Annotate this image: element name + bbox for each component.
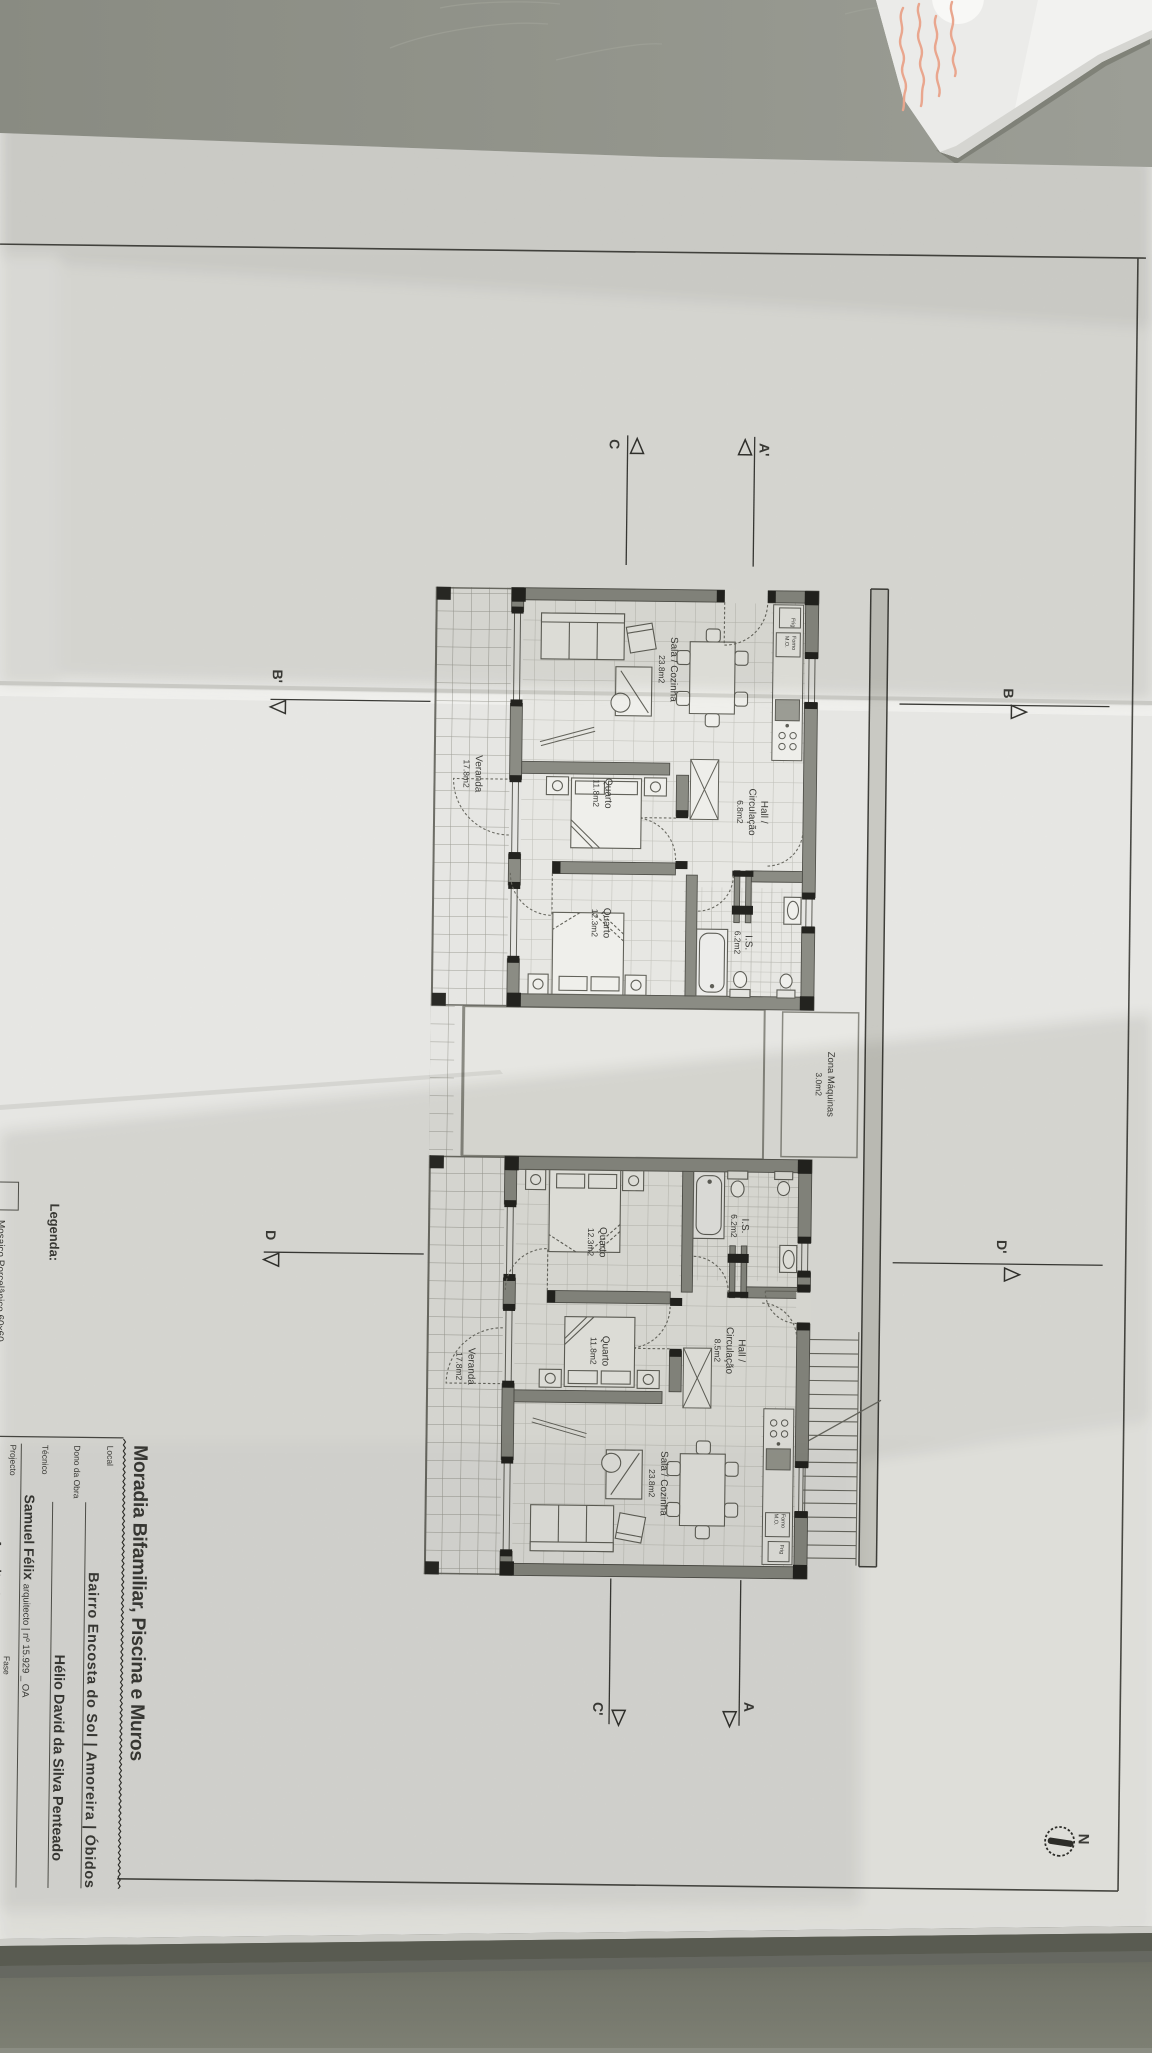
- svg-text:I.S.: I.S.: [742, 935, 753, 950]
- svg-text:12.3m2: 12.3m2: [590, 909, 600, 938]
- svg-text:6.2m2: 6.2m2: [732, 931, 742, 955]
- svg-text:Hall /: Hall /: [758, 801, 769, 824]
- svg-text:17.8m2: 17.8m2: [461, 759, 471, 788]
- svg-text:11.8m2: 11.8m2: [591, 779, 601, 807]
- svg-text:Quarto: Quarto: [602, 778, 613, 809]
- svg-text:Quarto: Quarto: [601, 908, 612, 939]
- svg-text:Veranda: Veranda: [472, 755, 483, 793]
- svg-text:6.8m2: 6.8m2: [735, 800, 745, 824]
- svg-text:Circulação: Circulação: [746, 788, 758, 836]
